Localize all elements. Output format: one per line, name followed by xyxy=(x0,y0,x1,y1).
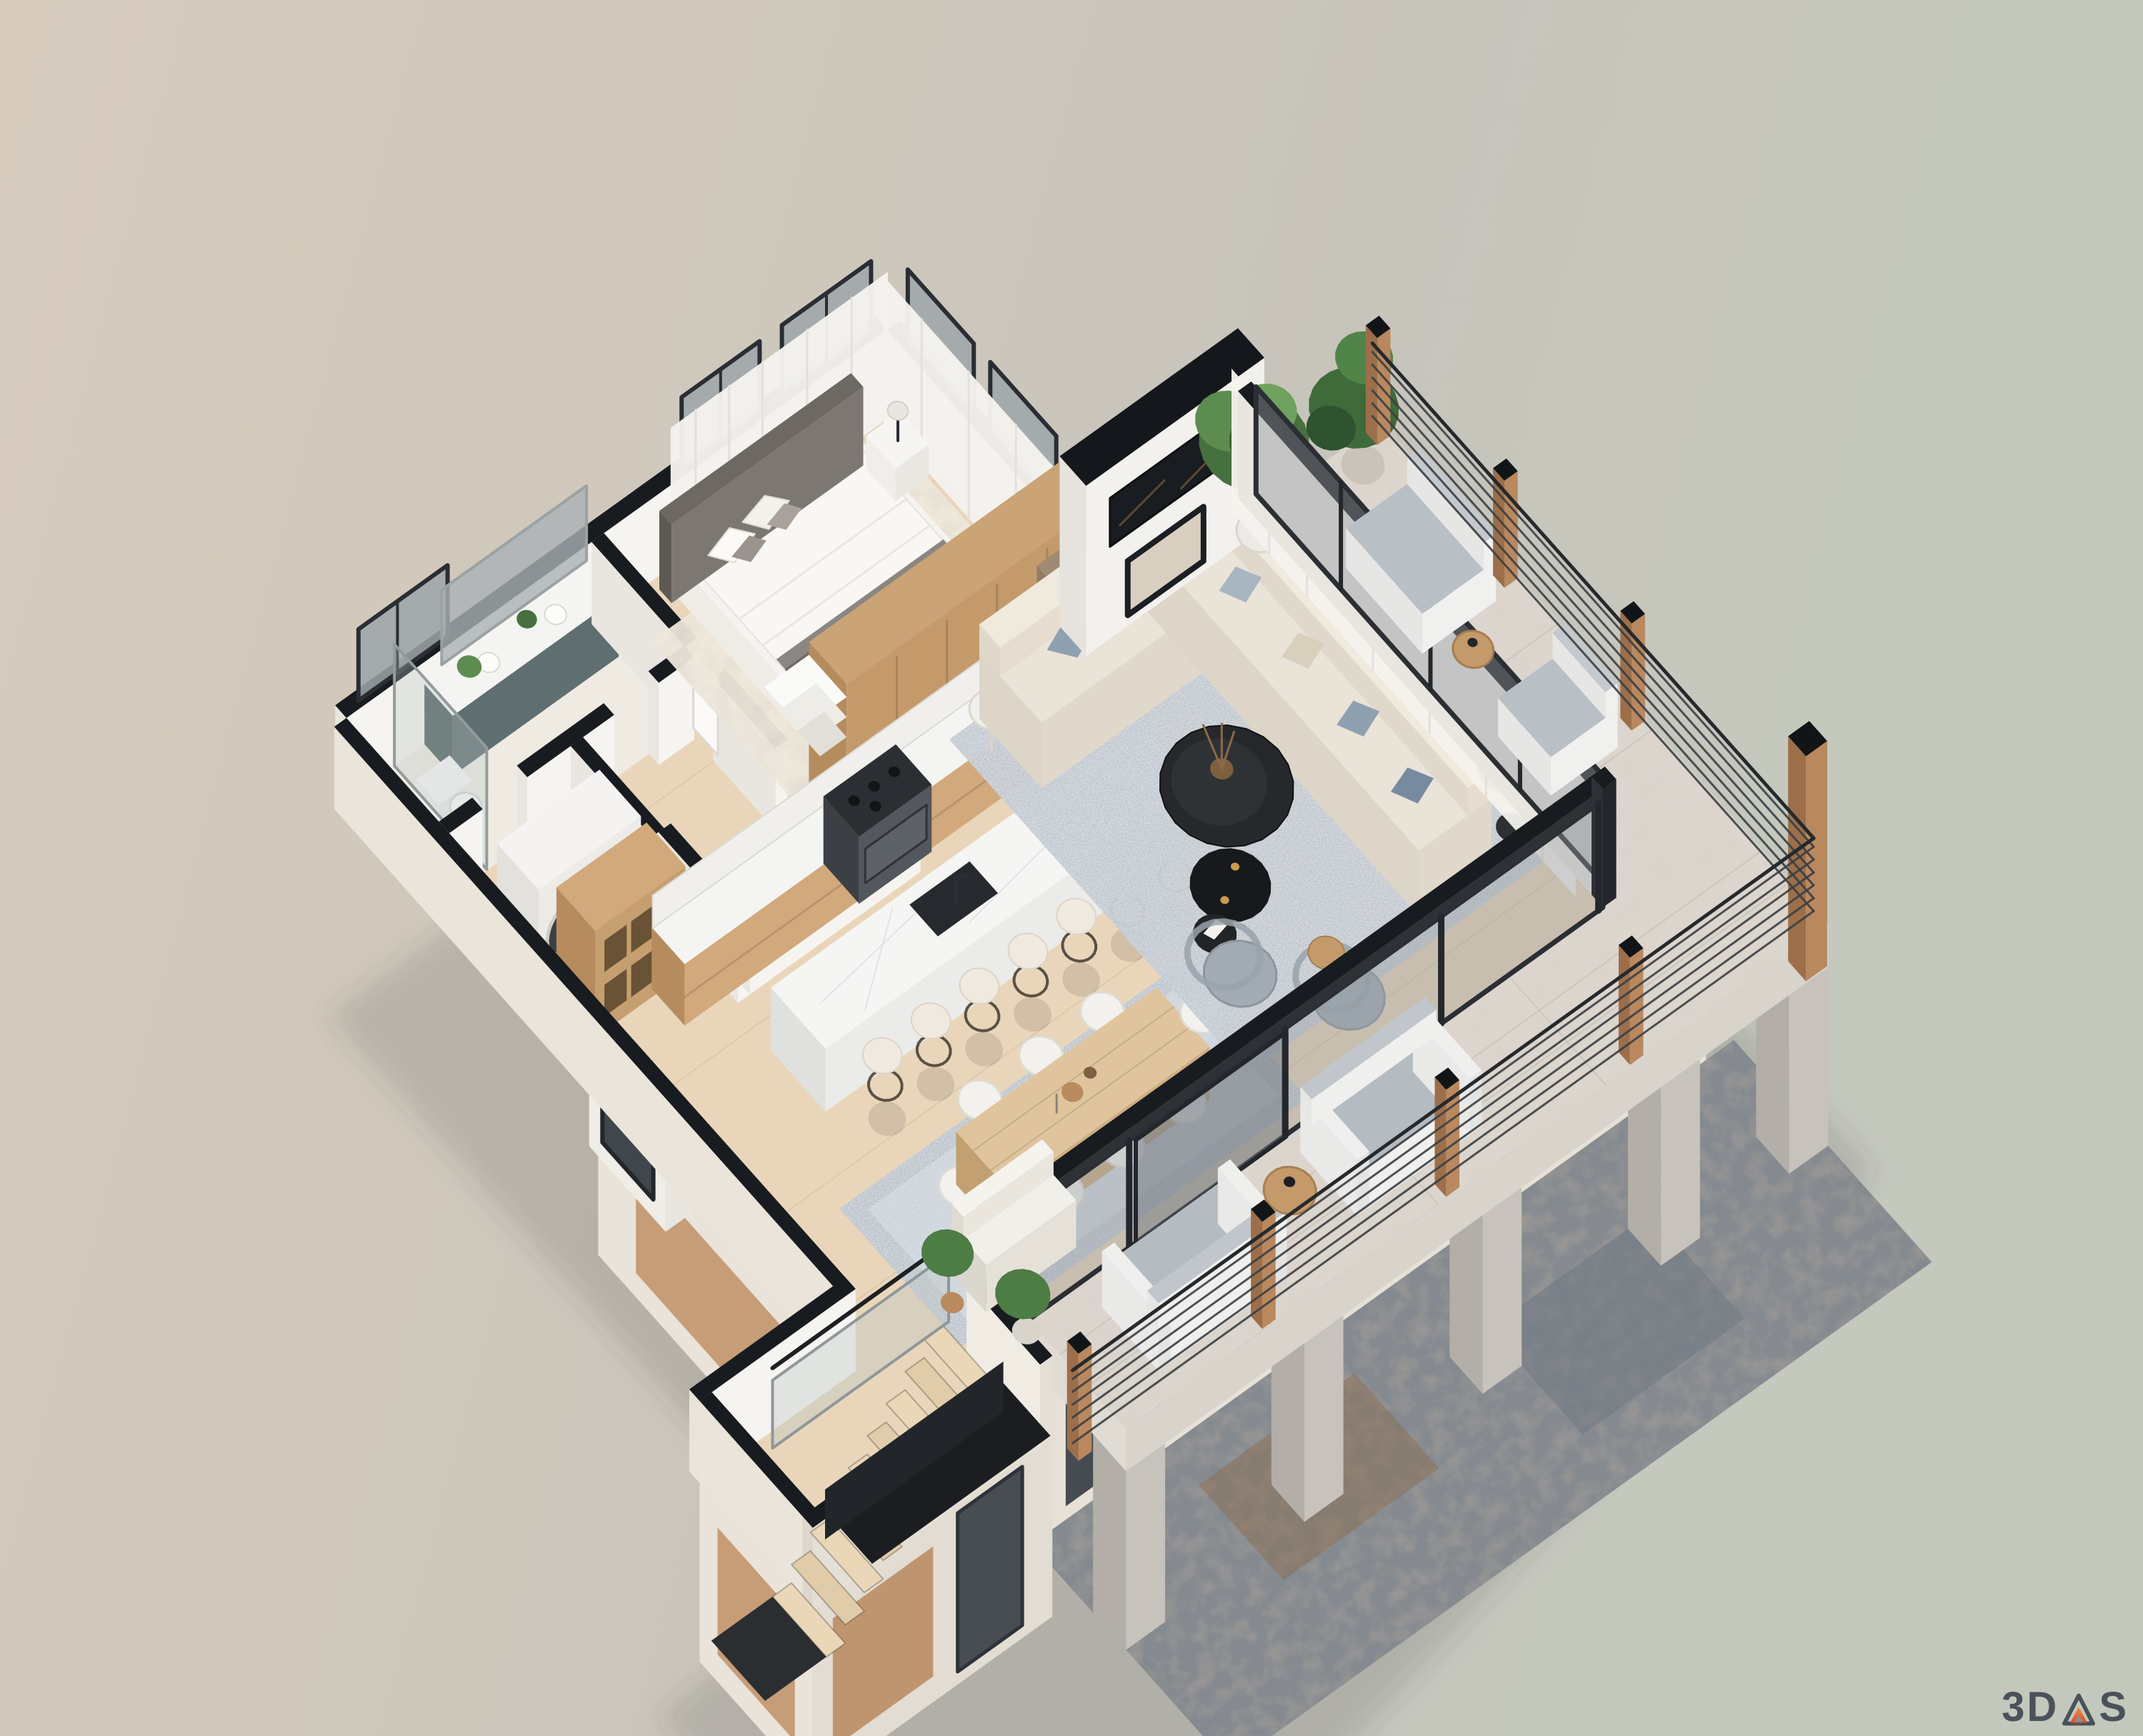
armchair xyxy=(1204,941,1277,1007)
logo-text-3d: 3D xyxy=(2002,1689,2059,1726)
concrete-column xyxy=(1789,967,1829,1174)
stool-seat xyxy=(863,1038,902,1074)
sink xyxy=(545,604,566,624)
logo-text-s: S xyxy=(2099,1689,2129,1726)
outdoor-table xyxy=(1453,631,1494,668)
logo-triangle-icon xyxy=(2062,1693,2095,1726)
stool-seat xyxy=(911,1003,951,1039)
corner-post-black xyxy=(1603,779,1617,908)
wall-wing-north xyxy=(689,1390,700,1483)
floorplan-3d-render xyxy=(0,0,2143,1736)
outdoor-table xyxy=(1264,1167,1316,1214)
railing-post-corner xyxy=(1806,741,1827,981)
brand-logo: 3D S xyxy=(2002,1689,2129,1726)
lamp-shade xyxy=(888,401,908,420)
scene-root xyxy=(328,261,1932,1736)
stool-seat xyxy=(1009,934,1048,969)
concrete-column xyxy=(1661,1059,1700,1266)
stool-seat xyxy=(1056,899,1096,934)
floorplan-canvas: 3D S xyxy=(0,0,2143,1736)
concrete-column xyxy=(1093,1435,1126,1650)
concrete-column xyxy=(1483,1187,1522,1394)
wall-bath-hall xyxy=(649,672,659,765)
concrete-column xyxy=(1126,1443,1165,1650)
stool-seat xyxy=(960,968,999,1004)
concrete-column xyxy=(1304,1315,1344,1522)
headboard xyxy=(659,511,671,603)
fireplace-wall xyxy=(1059,457,1086,656)
